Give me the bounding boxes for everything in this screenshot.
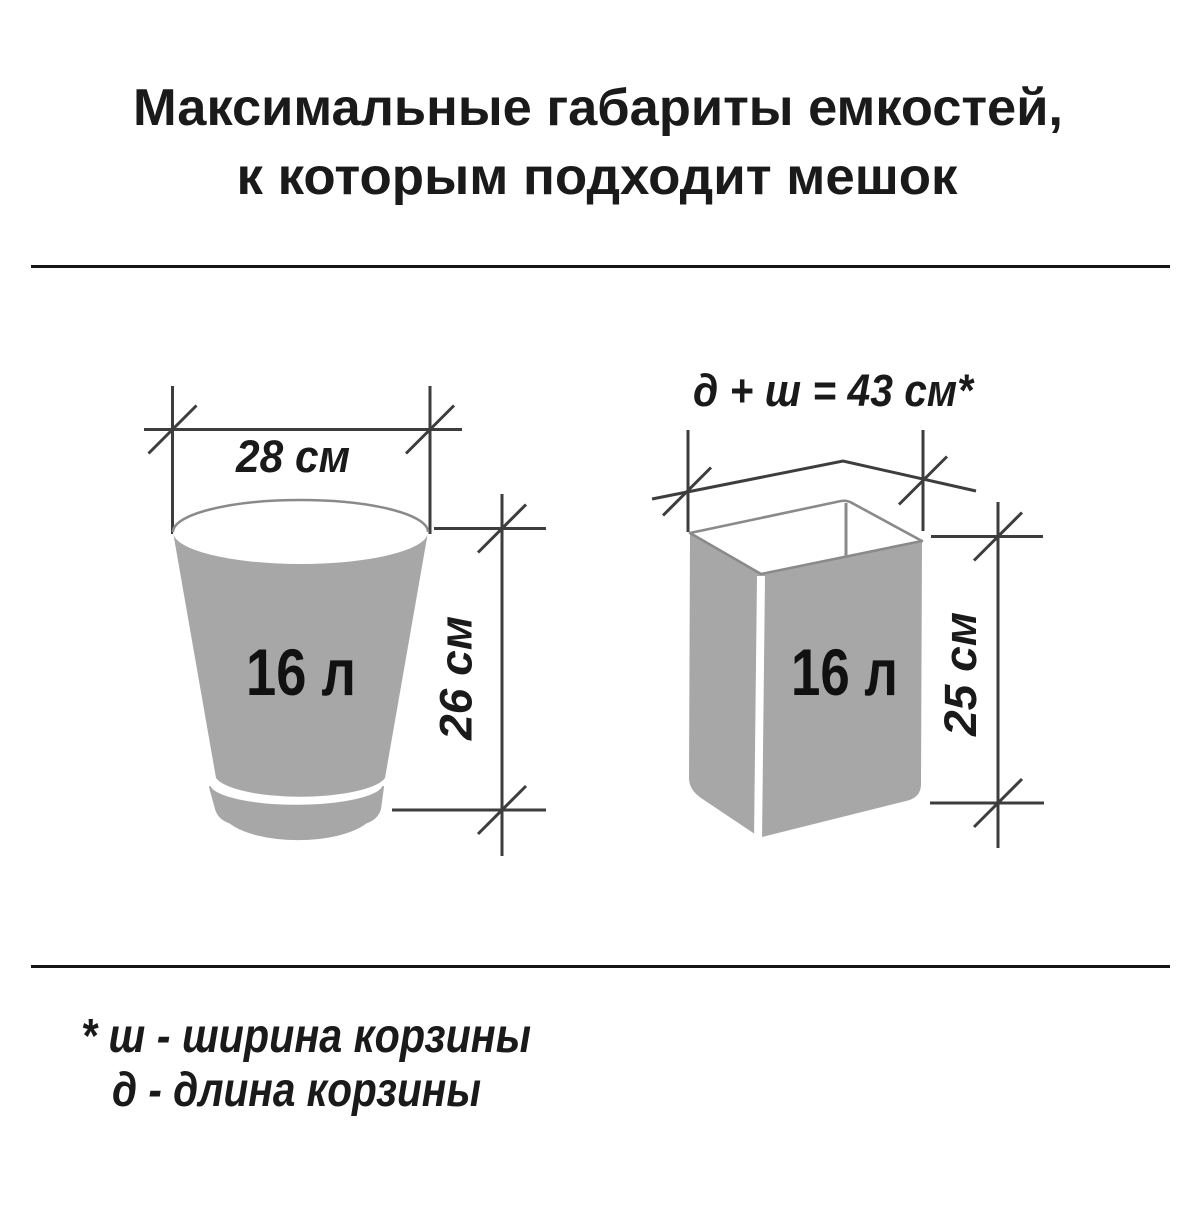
svg-text:26 см: 26 см xyxy=(431,616,482,741)
svg-text:16 л: 16 л xyxy=(246,635,356,709)
svg-text:16 л: 16 л xyxy=(791,635,898,709)
svg-text:к которым подходит мешок: к которым подходит мешок xyxy=(237,148,959,206)
svg-text:* ш - ширина корзины: * ш - ширина корзины xyxy=(81,1010,531,1063)
svg-text:25 см: 25 см xyxy=(935,612,986,737)
svg-text:д + ш = 43 см*: д + ш = 43 см* xyxy=(693,365,975,416)
svg-text:Максимальные габариты емкостей: Максимальные габариты емкостей, xyxy=(133,79,1063,137)
svg-text:д - длина корзины: д - длина корзины xyxy=(112,1064,481,1117)
svg-text:28 см: 28 см xyxy=(235,431,350,482)
